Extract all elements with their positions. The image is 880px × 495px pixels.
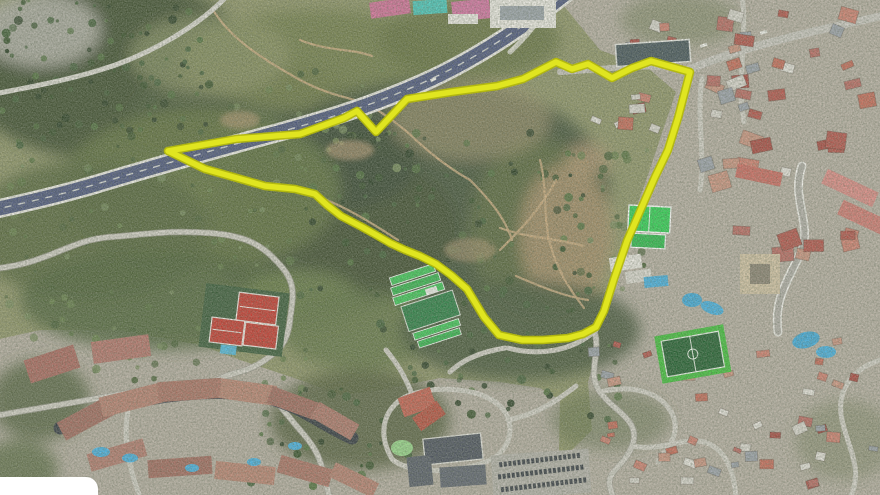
satellite-map [0,0,880,495]
attribution-box [0,477,98,495]
photo-grain-light [0,0,880,495]
aerial-photo [0,0,880,495]
